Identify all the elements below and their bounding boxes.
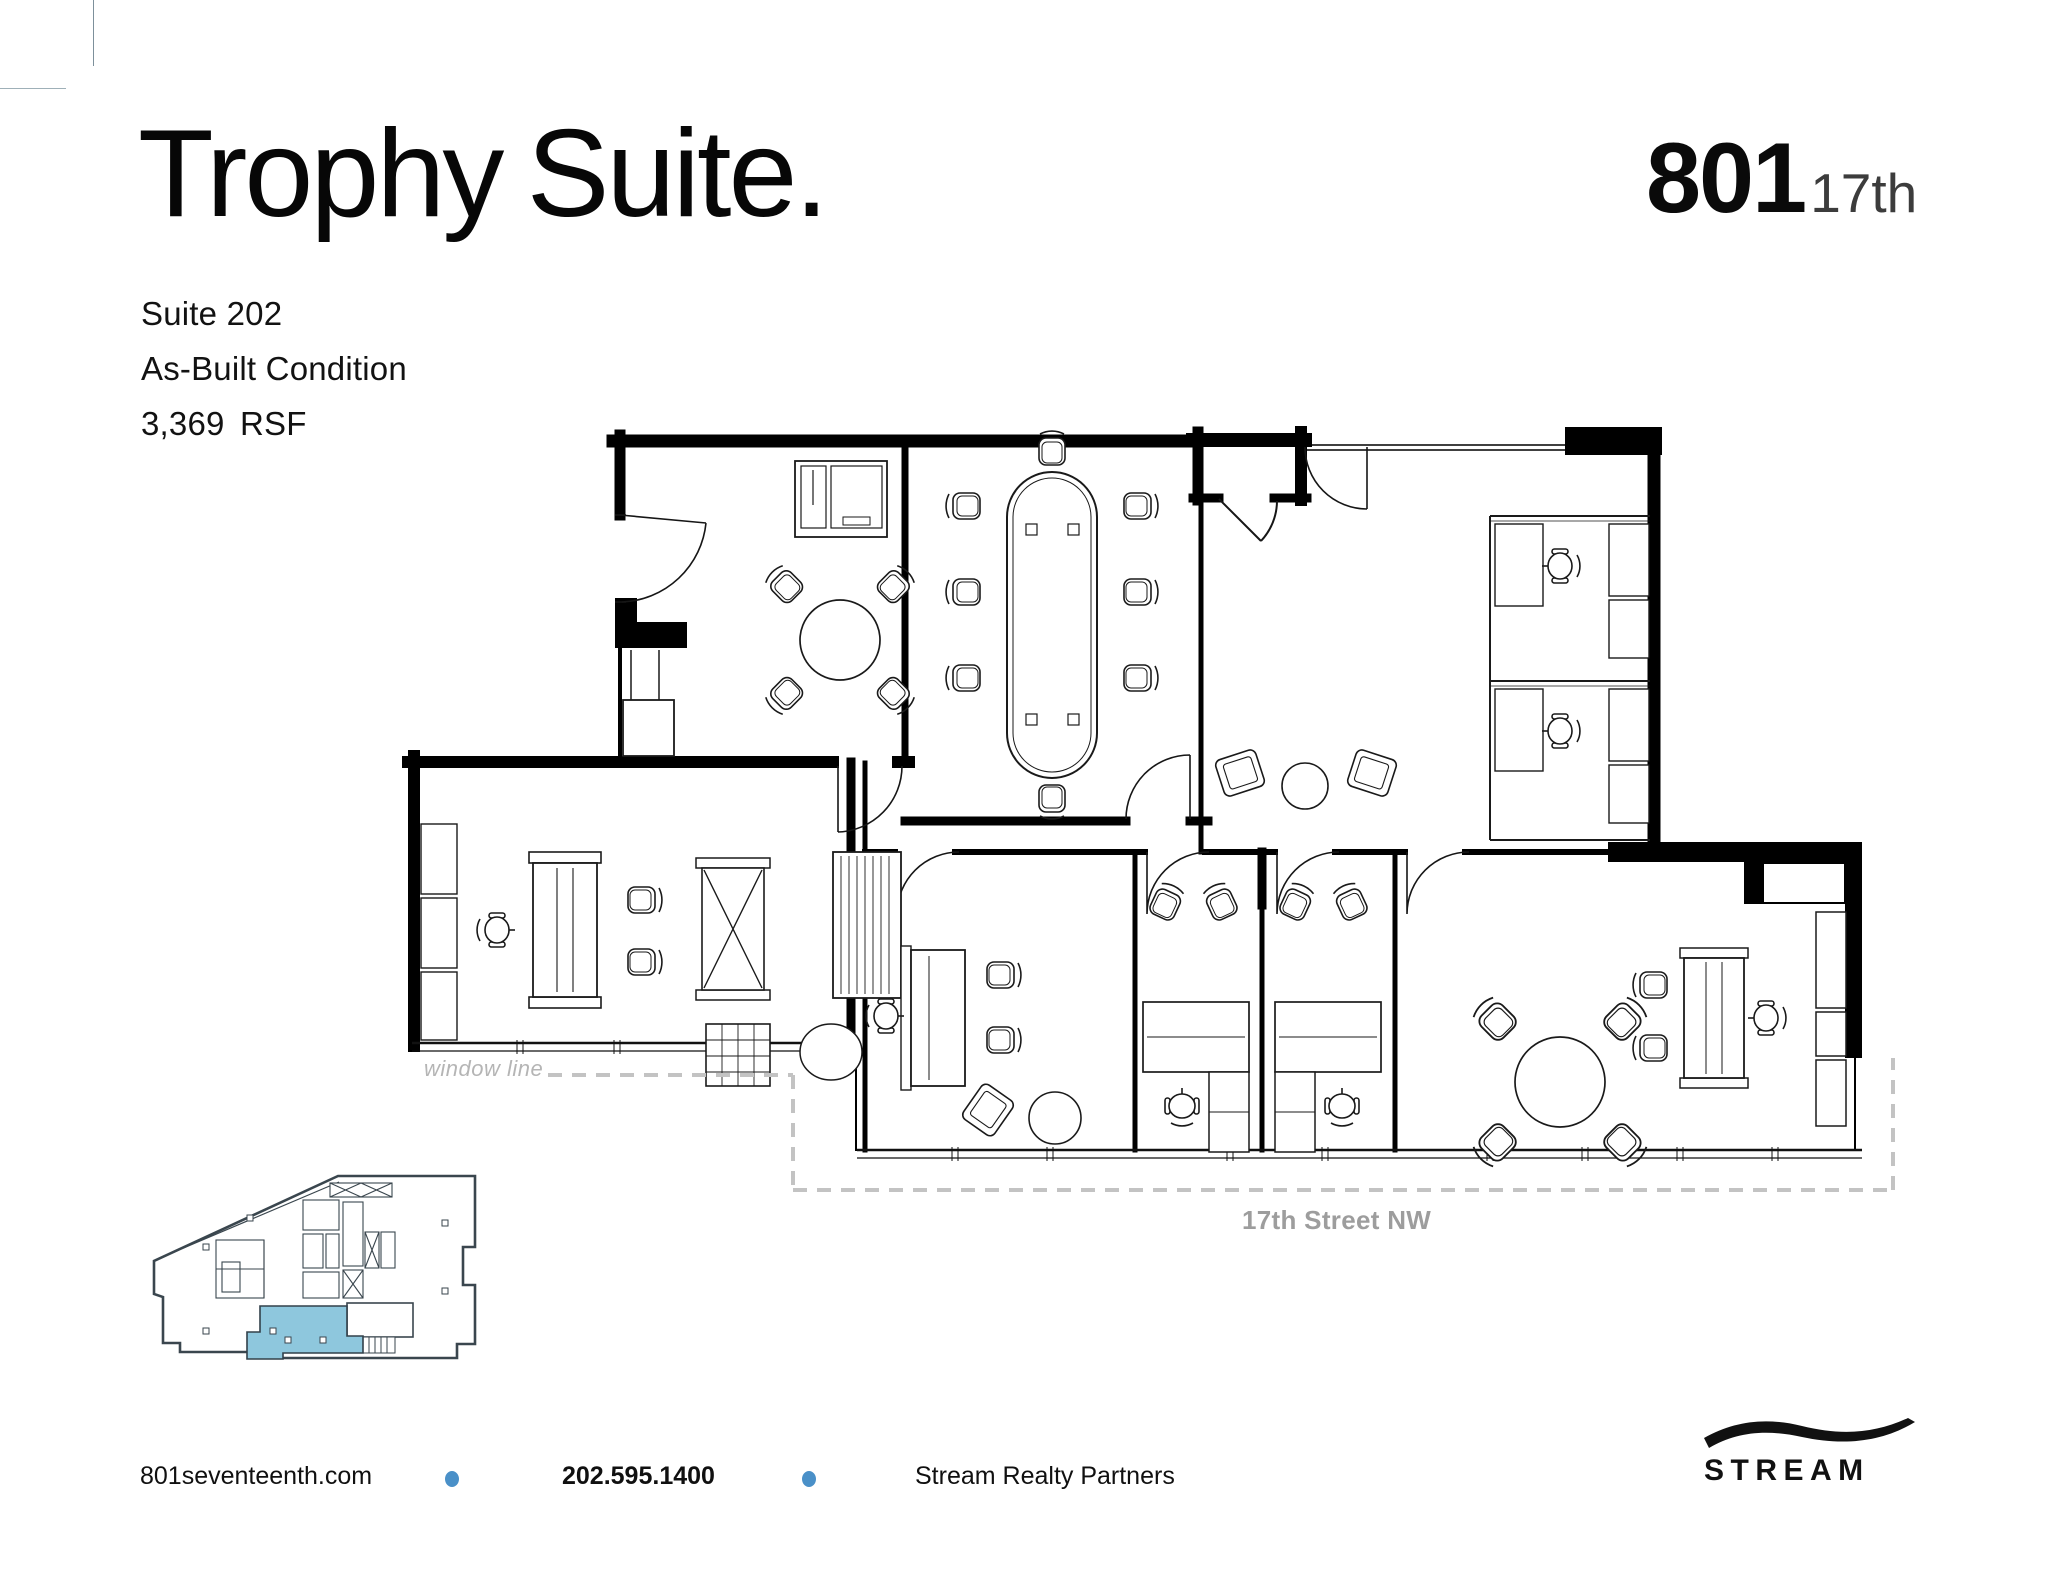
- crop-mark-vertical: [93, 0, 94, 66]
- flyer-page: Trophy Suite. Suite 202 As-Built Conditi…: [0, 0, 2048, 1583]
- footer-separator-dot: [443, 1470, 461, 1488]
- workstations: [1490, 516, 1650, 840]
- room-corner-office: [421, 824, 901, 1086]
- footer-separator-dot: [800, 1470, 818, 1488]
- building-street: 17th: [1810, 166, 1917, 221]
- window-line-label: window line: [424, 1056, 543, 1082]
- shaft-closet: [623, 650, 674, 756]
- area-label: 3,369 RSF: [141, 407, 307, 440]
- phone-number[interactable]: 202.595.1400: [562, 1464, 715, 1489]
- floor-plan: [380, 410, 1940, 1230]
- key-plan: [130, 1160, 550, 1420]
- room-office-5: [1470, 912, 1846, 1170]
- company-name: Stream Realty Partners: [915, 1464, 1175, 1489]
- room-breakroom: [763, 461, 917, 717]
- condition-label: As-Built Condition: [141, 352, 407, 385]
- suite-number: Suite 202: [141, 297, 282, 330]
- page-title: Trophy Suite.: [138, 112, 826, 236]
- building-logo: 801 17th: [1646, 128, 1917, 227]
- website-link[interactable]: 801seventeenth.com: [140, 1464, 372, 1489]
- crop-mark-horizontal: [0, 88, 66, 89]
- street-label: 17th Street NW: [1242, 1205, 1431, 1236]
- building-number: 801: [1646, 128, 1805, 227]
- reception-lounge: [1214, 748, 1398, 809]
- stream-logo: STREAM: [1704, 1412, 1916, 1488]
- key-plan-suite-highlight: [247, 1306, 363, 1359]
- wall-niche: [1763, 863, 1845, 903]
- stream-wave-icon: [1704, 1412, 1916, 1450]
- room-conference: [946, 431, 1158, 819]
- stream-wordmark: STREAM: [1704, 1454, 1916, 1488]
